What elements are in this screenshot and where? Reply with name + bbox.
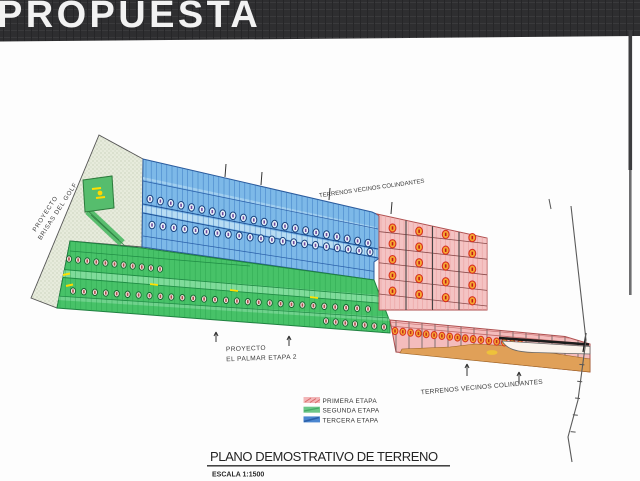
svg-text:PRIMERA ETAPA: PRIMERA ETAPA xyxy=(323,398,378,405)
svg-text:PROPUESTA: PROPUESTA xyxy=(0,0,261,36)
svg-text:PROYECTO: PROYECTO xyxy=(226,345,266,353)
svg-text:TERCERA ETAPA: TERCERA ETAPA xyxy=(323,417,379,424)
svg-text:PLANO DEMOSTRATIVO DE TERRENO: PLANO DEMOSTRATIVO DE TERRENO xyxy=(210,449,438,464)
svg-text:ESCALA 1:1500: ESCALA 1:1500 xyxy=(212,472,264,479)
svg-text:SEGUNDA ETAPA: SEGUNDA ETAPA xyxy=(323,408,380,415)
